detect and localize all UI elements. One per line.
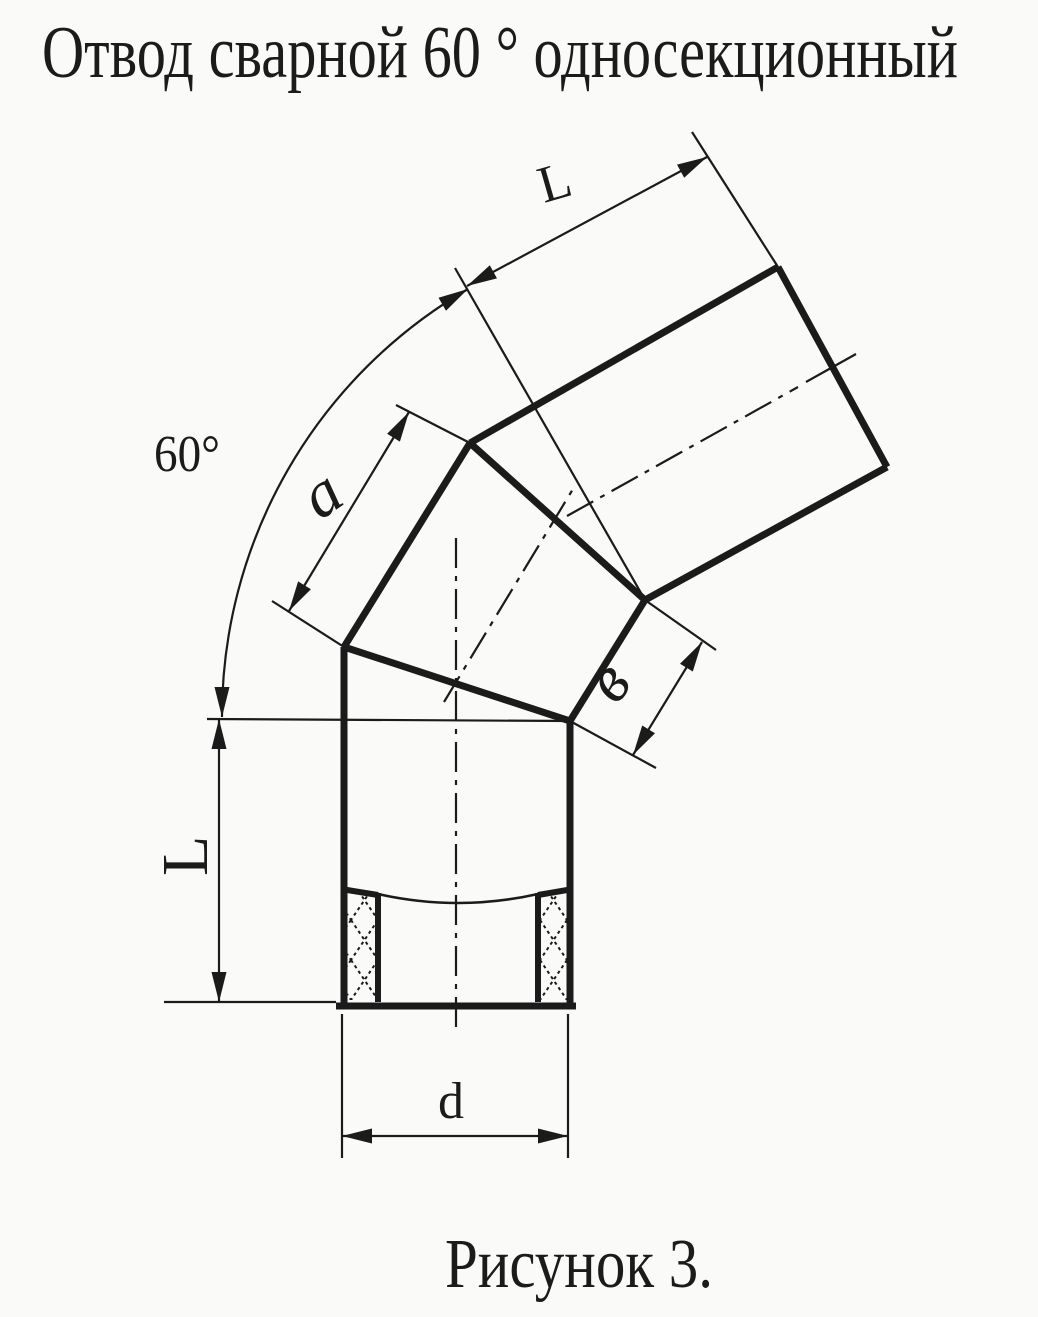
extension-line-L-outer [692,132,778,267]
label-lower-segment-length: L [149,836,222,876]
label-bend-angle: 60° [154,426,220,483]
dim-line-L-upper [467,157,707,286]
arrow-d-left [342,1129,372,1144]
arrow-L-upper-left [467,265,497,286]
elbow-technical-drawing: Отвод сварной 60 ° односекционный [0,0,1038,1317]
figure-caption: Рисунок 3. [445,1226,713,1303]
upper-pipe-inner-wall [645,467,887,600]
interior-break-curve [378,894,538,903]
hatched-wall-right [541,892,569,1000]
dimension-arrowheads [212,157,708,1144]
label-middle-outer-length: a [287,455,356,534]
arrow-a-bottom [289,581,311,611]
centerline-upper-pipe [567,387,798,516]
arrow-v-bottom [633,726,655,756]
upper-pipe-end-cap [778,267,887,467]
extension-line-a-top [396,405,470,443]
label-upper-segment-length: L [532,151,578,215]
arrow-v-top [680,642,702,672]
pipe-outline [336,267,887,1006]
arrow-L-vertical-bottom [212,972,227,1002]
scanned-drawing-sheet: Отвод сварной 60 ° односекционный [0,0,1038,1317]
extension-line-v-top [645,600,716,650]
arrow-a-top [387,412,409,442]
extension-line-a-bottom [272,601,344,647]
arrow-arc-bottom [215,687,230,717]
weld-joint-upper [470,443,645,600]
middle-section-outer-wall [344,443,470,647]
arrow-d-right [538,1129,568,1144]
arrow-L-vertical-top [212,719,227,749]
hatched-wall-left [347,892,375,1000]
drawing-title: Отвод сварной 60 ° односекционный [42,12,958,94]
upper-pipe-outer-wall [470,267,778,443]
extension-line-horizontal [207,719,570,721]
center-lines [444,354,856,1034]
arrow-arc-top [439,289,469,311]
label-pipe-diameter: d [438,1073,464,1130]
arrow-L-upper-right [677,157,707,178]
